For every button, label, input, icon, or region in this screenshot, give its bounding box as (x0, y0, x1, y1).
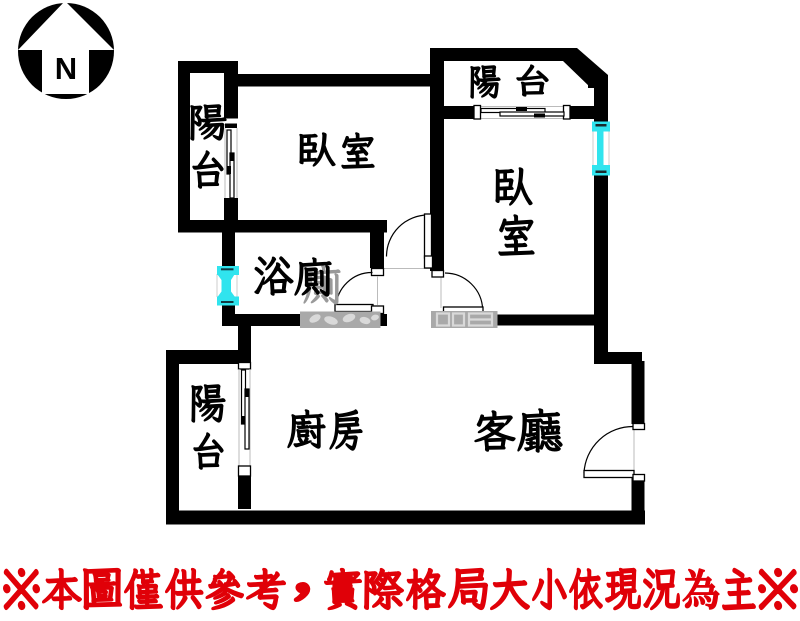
svg-text:N: N (55, 51, 77, 86)
